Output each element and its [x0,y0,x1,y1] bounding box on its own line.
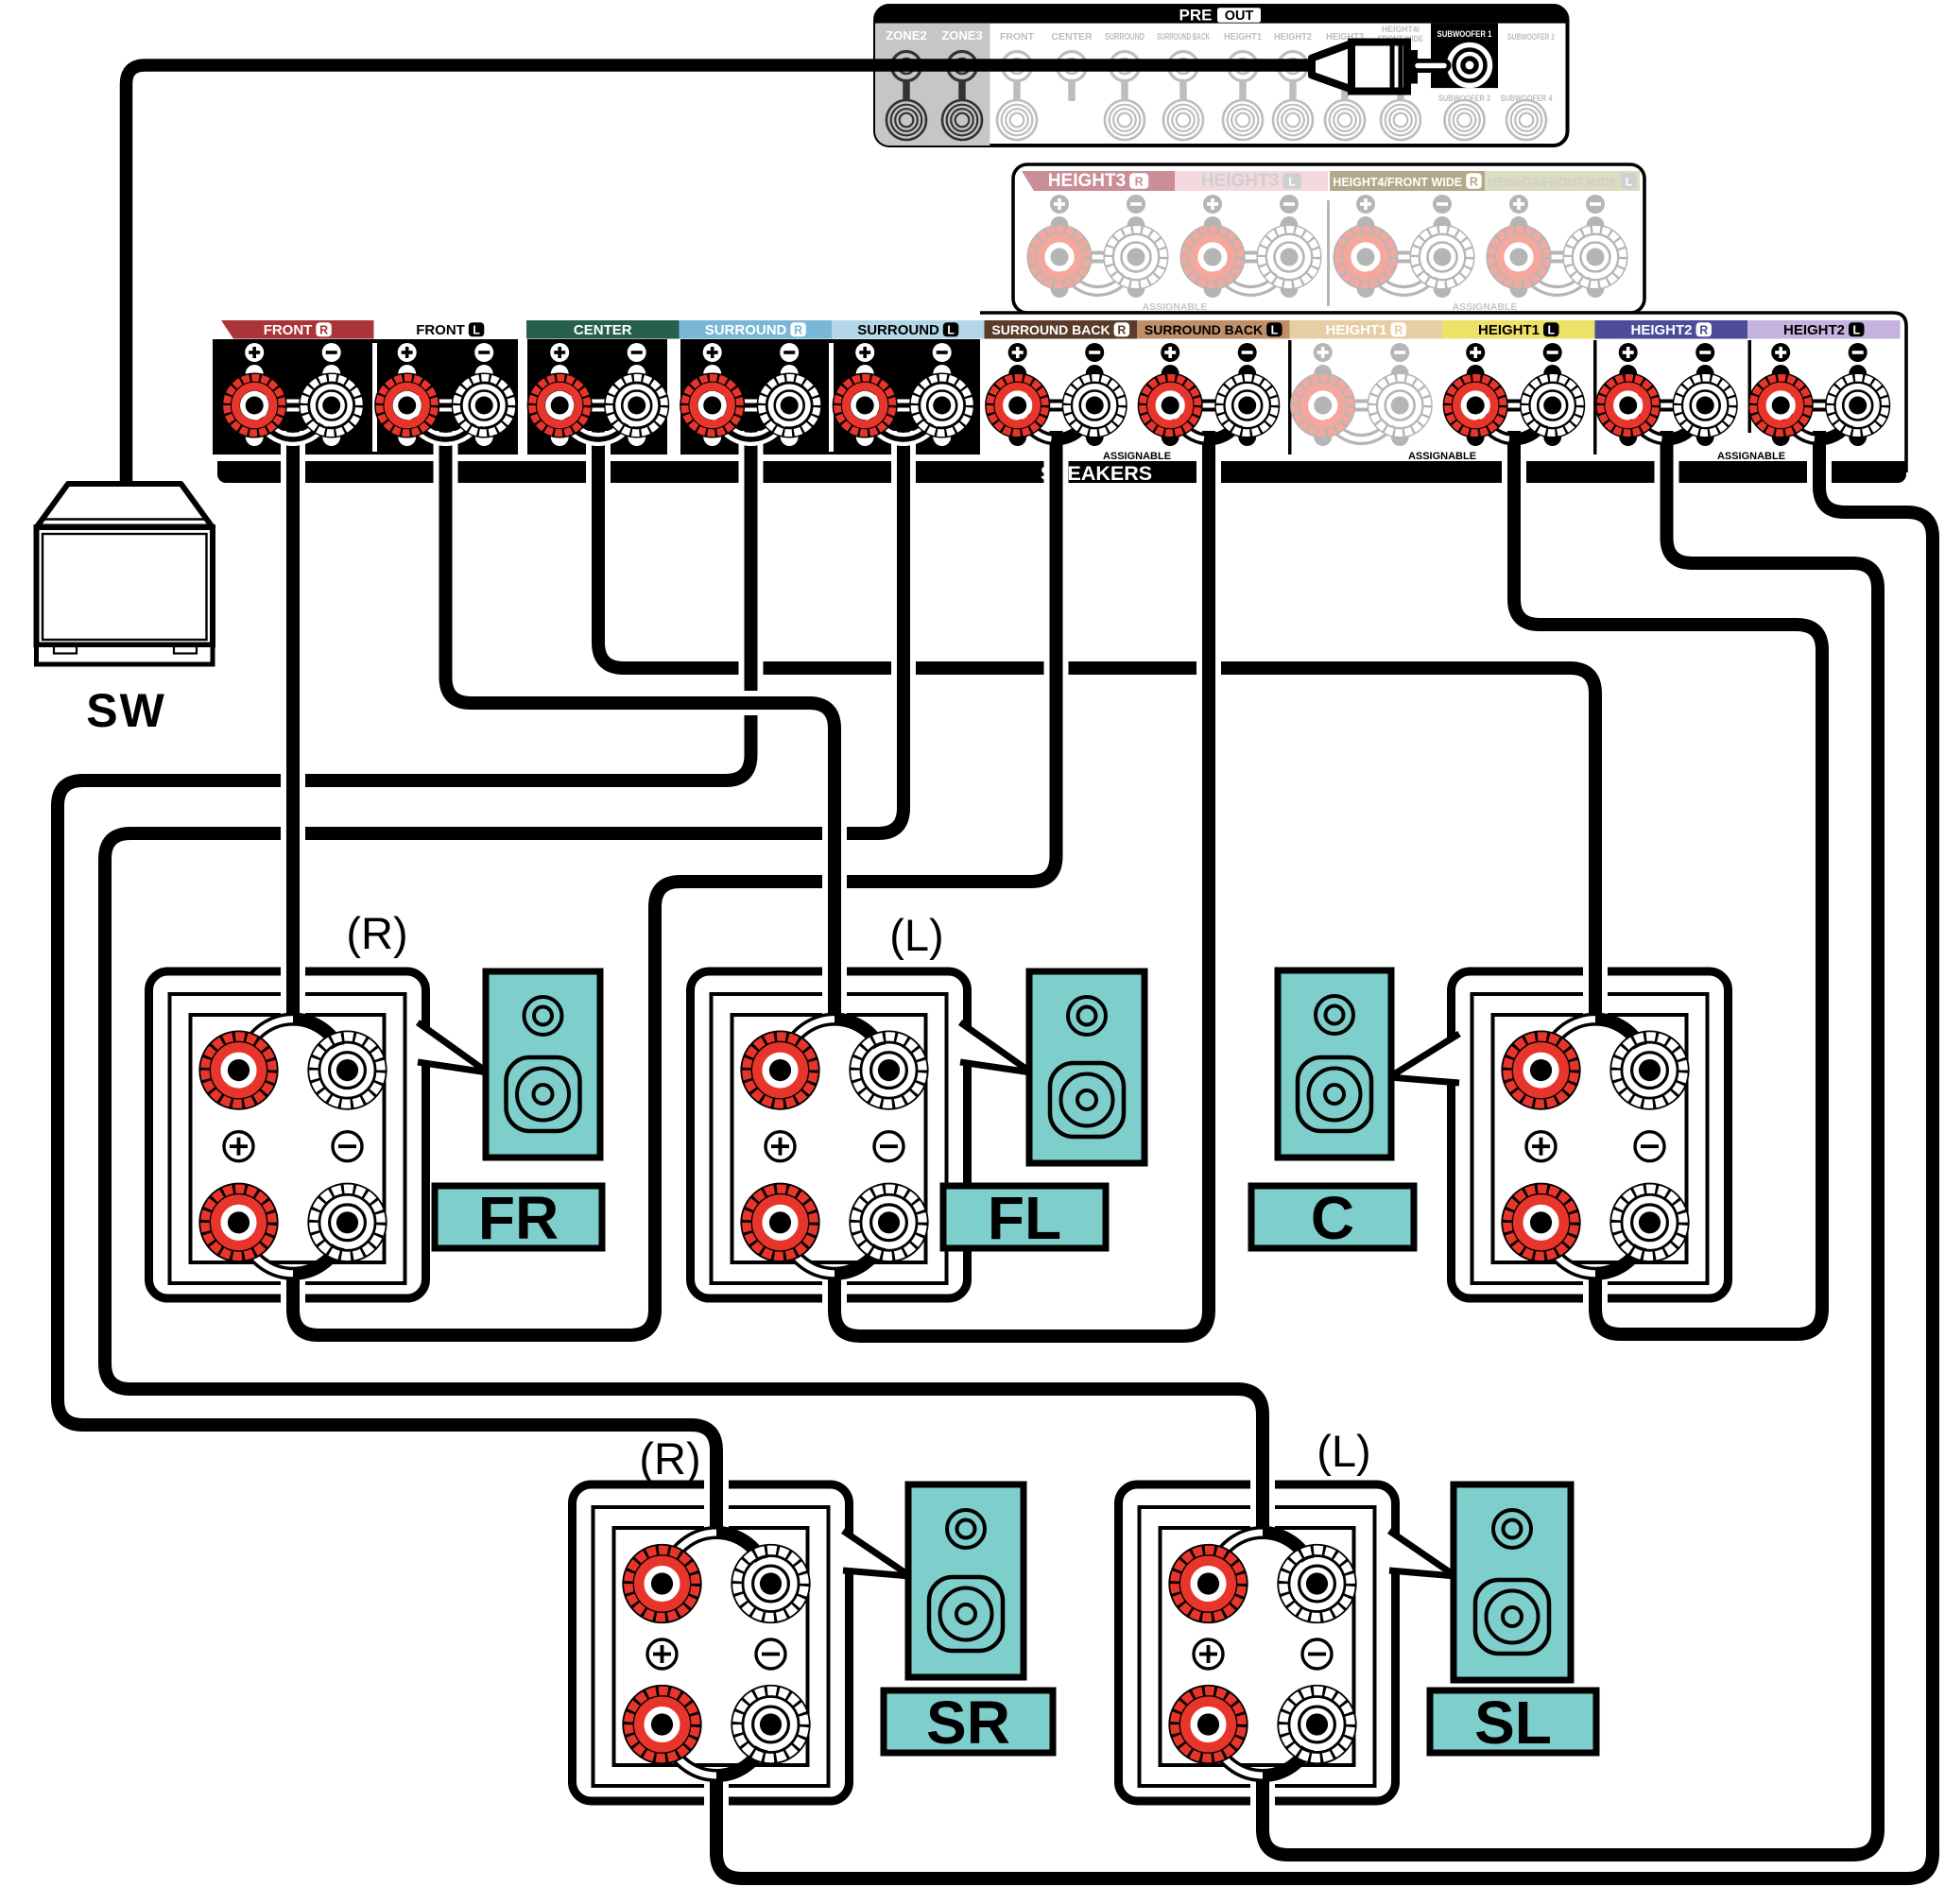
svg-text:HEIGHT1: HEIGHT1 [1478,322,1540,338]
svg-text:SURROUND: SURROUND [857,322,939,338]
svg-text:SW: SW [86,684,166,737]
svg-text:ASSIGNABLE: ASSIGNABLE [1717,451,1785,462]
svg-text:SURROUND: SURROUND [705,322,787,338]
svg-text:HEIGHT1: HEIGHT1 [1326,322,1387,338]
svg-text:L: L [1852,324,1860,337]
svg-text:R: R [1699,324,1708,337]
svg-text:HEIGHT3: HEIGHT3 [1048,171,1126,191]
svg-text:CENTER: CENTER [1051,31,1093,43]
svg-text:(R): (R) [639,1433,700,1484]
svg-text:L: L [473,324,480,337]
svg-text:(R): (R) [346,908,407,958]
svg-text:CENTER: CENTER [574,322,632,338]
svg-text:SURROUND: SURROUND [1105,31,1145,43]
svg-text:L: L [1288,175,1296,188]
svg-text:R: R [1470,175,1478,188]
svg-text:SURROUND BACK: SURROUND BACK [1145,322,1263,337]
svg-text:R: R [1135,175,1144,188]
svg-text:SURROUND BACK: SURROUND BACK [1157,31,1210,43]
svg-text:SUBWOOFER 3: SUBWOOFER 3 [1438,94,1490,104]
svg-text:FL: FL [988,1184,1061,1252]
svg-text:R: R [1117,324,1126,337]
svg-text:HEIGHT3: HEIGHT3 [1201,171,1279,191]
svg-text:R: R [794,324,802,337]
svg-text:FRONT: FRONT [416,322,465,338]
svg-text:ZONE3: ZONE3 [941,28,982,43]
svg-text:SUBWOOFER 1: SUBWOOFER 1 [1437,29,1493,40]
svg-text:SUBWOOFER 4: SUBWOOFER 4 [1501,94,1554,104]
svg-text:HEIGHT2: HEIGHT2 [1783,322,1845,338]
svg-text:FR: FR [478,1184,559,1252]
svg-text:FRONT: FRONT [264,322,313,338]
svg-text:R: R [1394,324,1403,337]
svg-text:SR: SR [926,1689,1010,1757]
svg-text:HEIGHT2: HEIGHT2 [1274,31,1312,43]
svg-text:L: L [947,324,955,337]
svg-text:(L): (L) [889,910,943,960]
svg-text:PRE: PRE [1179,7,1213,25]
svg-text:SURROUND BACK: SURROUND BACK [991,322,1110,337]
svg-text:HEIGHT1: HEIGHT1 [1224,31,1262,43]
svg-text:FRONT: FRONT [1000,31,1035,43]
svg-text:(L): (L) [1317,1426,1370,1476]
svg-text:C: C [1311,1184,1354,1252]
svg-text:R: R [319,324,328,337]
svg-text:SUBWOOFER 2: SUBWOOFER 2 [1507,32,1555,43]
svg-text:ASSIGNABLE: ASSIGNABLE [1408,451,1476,462]
svg-text:HEIGHT4/: HEIGHT4/ [1382,25,1420,34]
svg-text:HEIGHT4/FRONT WIDE: HEIGHT4/FRONT WIDE [1333,176,1462,189]
svg-text:ZONE2: ZONE2 [886,28,926,43]
svg-text:L: L [1626,175,1633,188]
svg-text:HEIGHT4/FRONT WIDE: HEIGHT4/FRONT WIDE [1488,176,1617,189]
svg-text:HEIGHT2: HEIGHT2 [1631,322,1693,338]
svg-text:SL: SL [1474,1689,1552,1757]
svg-text:L: L [1271,324,1279,337]
svg-text:OUT: OUT [1225,9,1254,24]
svg-text:L: L [1547,324,1555,337]
svg-text:ASSIGNABLE: ASSIGNABLE [1103,451,1171,462]
